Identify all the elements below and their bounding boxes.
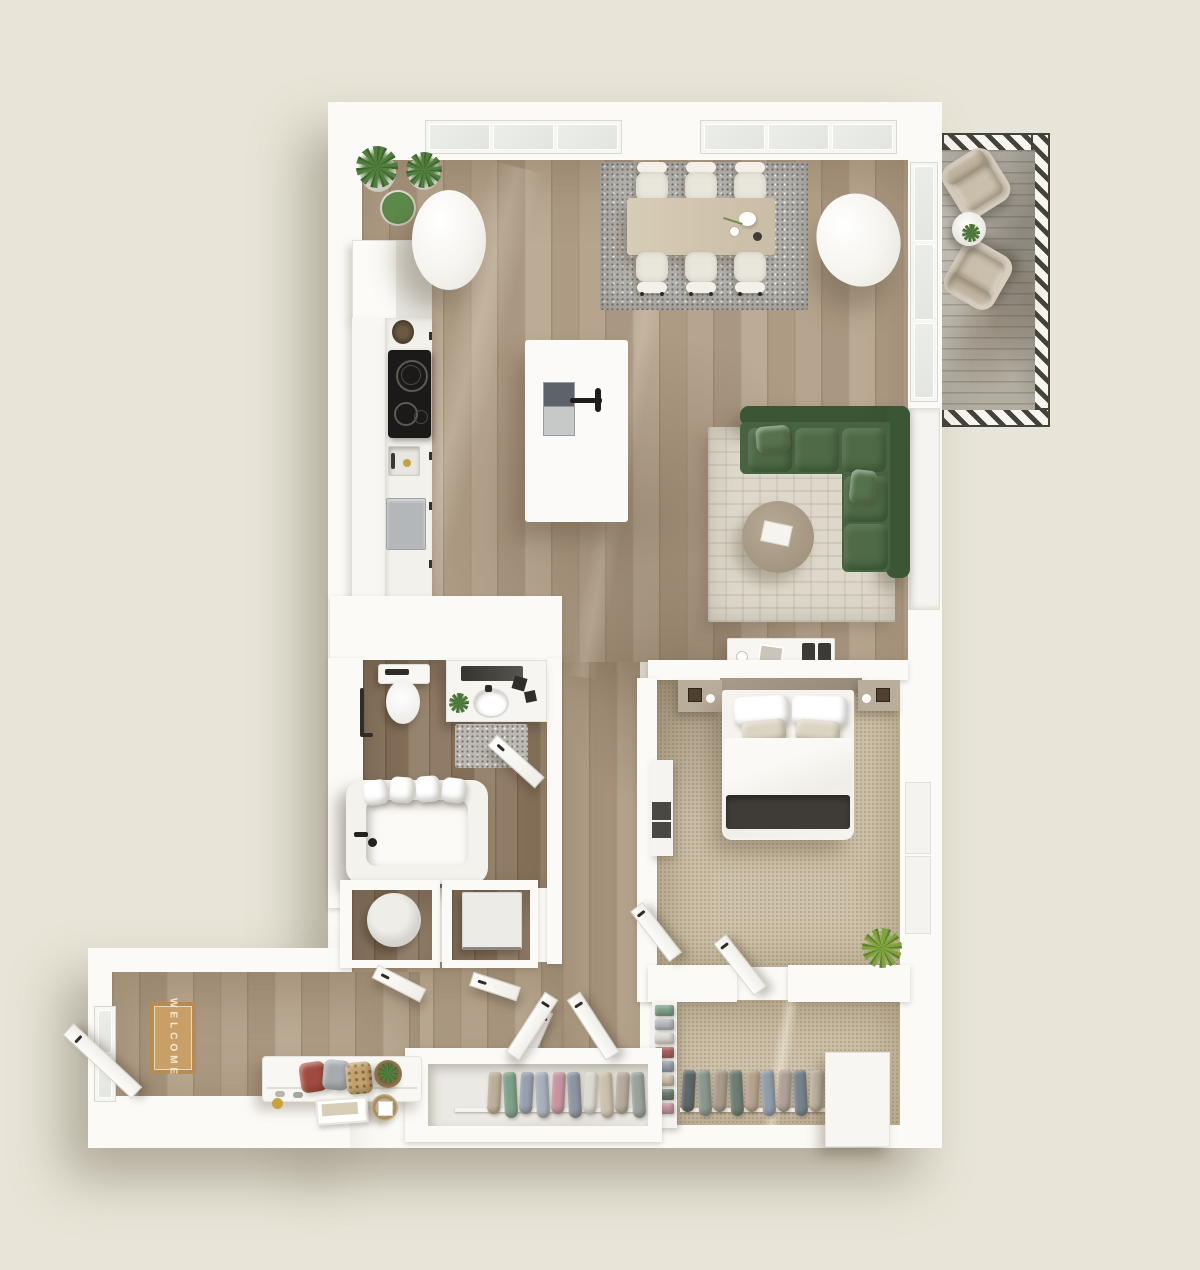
right-wall-window	[910, 162, 938, 402]
toilet-flush	[385, 669, 409, 675]
chair-leg	[758, 292, 762, 296]
chair-leg	[709, 292, 713, 296]
cabinet-handle	[429, 560, 432, 568]
bathtub-drain	[368, 838, 377, 847]
burner	[414, 410, 428, 424]
potted-plant	[356, 146, 398, 188]
nightstand-lamp	[876, 688, 890, 702]
art-image	[321, 1102, 358, 1116]
washing-machine	[367, 893, 421, 947]
towel-rail-foot	[360, 733, 373, 737]
clothing-item	[729, 1070, 744, 1117]
basket-with-towel	[371, 1094, 398, 1121]
vanity-faucet	[485, 685, 492, 692]
closet-divider-wall	[788, 965, 910, 1002]
bedroom-plant	[862, 928, 902, 968]
potted-plant	[406, 152, 442, 188]
dining-table	[627, 198, 775, 255]
sofa-throw-pillow	[848, 469, 877, 506]
window-pane	[914, 244, 934, 319]
clothing-item	[713, 1070, 728, 1113]
bathtub-basin	[366, 800, 468, 866]
dining-chair	[685, 252, 717, 282]
clothing-item	[551, 1072, 566, 1115]
welcome-mat-text: WELCOME	[168, 998, 179, 1078]
bathtub	[346, 780, 488, 884]
bathroom-right-wall	[547, 658, 562, 964]
clothing-item	[631, 1072, 646, 1119]
rolled-towel	[441, 777, 468, 805]
charcoal-throw	[726, 795, 850, 829]
nightstand	[858, 680, 900, 711]
hanging-clothes	[488, 1072, 645, 1118]
cabinet-handle	[429, 452, 432, 460]
dishwasher	[386, 498, 426, 550]
clothing-item	[535, 1072, 550, 1119]
table-cup	[753, 232, 762, 241]
dining-chair	[734, 252, 766, 282]
door-handle	[380, 973, 389, 980]
basket-towel	[378, 1101, 393, 1116]
window-pane	[768, 124, 829, 150]
clothing-item	[655, 1019, 674, 1030]
chair-leg	[738, 292, 742, 296]
basket-with-plant	[374, 1060, 402, 1088]
nightstand-cup	[862, 694, 871, 703]
door-handle	[541, 1001, 550, 1008]
island-sink	[543, 382, 575, 436]
cooktop	[388, 350, 431, 438]
sink-faucet	[391, 453, 395, 469]
basket-plant	[378, 1063, 398, 1083]
utility-unit	[462, 892, 522, 950]
nightstand-cup	[706, 694, 715, 703]
door-handle	[496, 744, 505, 752]
gold-dish	[272, 1098, 283, 1109]
bedroom-dresser	[650, 760, 673, 856]
vanity-cosmetics	[511, 675, 527, 691]
sofa-throw-pillow	[755, 425, 791, 454]
clothing-item	[519, 1072, 534, 1115]
clothing-item	[745, 1070, 760, 1113]
cabinet-handle	[429, 332, 432, 340]
window-pane	[98, 1010, 112, 1053]
balcony-door	[908, 408, 940, 610]
clothing-item	[809, 1070, 824, 1113]
nightstand	[678, 680, 722, 712]
clothing-item	[777, 1070, 792, 1113]
sofa-cushion	[844, 524, 888, 570]
clothing-item	[793, 1070, 808, 1117]
kitchen-sink	[388, 446, 420, 476]
welcome-mat: WELCOME	[150, 1002, 196, 1074]
rolled-towel	[362, 778, 389, 806]
island-faucet-handle	[595, 388, 601, 412]
sofa-cushion	[795, 428, 839, 472]
closet-divider-wall	[648, 965, 737, 1002]
clothing-item	[697, 1070, 712, 1117]
chair-leg	[689, 292, 693, 296]
double-bed	[722, 690, 854, 840]
window-pane	[832, 124, 893, 150]
bathroom-vanity	[446, 660, 547, 722]
door-handle	[477, 980, 486, 986]
potted-plant	[382, 192, 414, 224]
chair-leg	[640, 292, 644, 296]
kitchen-tall-cabinets	[352, 318, 386, 600]
burner	[401, 365, 421, 385]
window-pane	[914, 166, 934, 241]
rolled-towel	[389, 776, 415, 804]
leaning-wall-art	[315, 1096, 369, 1126]
clothing-item	[583, 1072, 598, 1115]
bathtub-faucet	[354, 832, 368, 837]
window-band	[425, 120, 622, 154]
counter-decor-plant	[392, 320, 414, 344]
coffee-table	[742, 501, 814, 573]
clothing-item	[487, 1072, 502, 1115]
round-column	[412, 190, 486, 290]
window-pane	[557, 124, 618, 150]
nightstand-lamp	[688, 688, 702, 702]
table-plant	[962, 224, 980, 242]
window-pane	[429, 124, 490, 150]
clothing-item	[567, 1072, 582, 1119]
clothing-item	[503, 1072, 518, 1119]
toilet-bowl	[386, 680, 420, 724]
closet-cabinet	[825, 1052, 890, 1147]
clothing-item	[655, 1033, 674, 1044]
window-pane	[914, 323, 934, 398]
dresser-drawer	[652, 822, 671, 838]
window-band	[700, 120, 897, 154]
window-pane	[704, 124, 765, 150]
bench-shoes	[293, 1092, 303, 1098]
table-cup	[729, 226, 740, 237]
clothing-item	[655, 1005, 674, 1016]
door-handle	[74, 1035, 82, 1044]
cabinet-handle	[429, 502, 432, 510]
bedroom-north-wall	[648, 660, 908, 680]
door-handle	[720, 942, 729, 950]
balcony-railing	[944, 410, 1048, 425]
floor-plan-scene: WELCOME	[0, 0, 1200, 1270]
clothing-item	[615, 1072, 630, 1115]
window-pane	[493, 124, 554, 150]
coffee-table-book	[760, 520, 793, 547]
vanity-sink	[473, 688, 509, 718]
vanity-cosmetics	[524, 690, 537, 703]
bench-pillow-leopard	[345, 1061, 374, 1095]
wall-panel-door	[905, 856, 931, 934]
clothing-item	[761, 1070, 776, 1117]
door-handle	[637, 910, 646, 918]
wall-panel-door	[905, 782, 931, 854]
sofa-cushion	[842, 428, 886, 472]
door-handle	[574, 1001, 583, 1008]
towel-rail	[360, 688, 364, 736]
kitchen-island	[525, 340, 628, 522]
bathroom-top-wall	[330, 596, 562, 660]
rolled-towel	[415, 775, 441, 803]
vanity-plant	[449, 693, 469, 713]
dresser-drawer	[652, 802, 671, 820]
sink-drain	[403, 459, 411, 467]
clothing-item	[599, 1072, 614, 1119]
bench-shoes	[275, 1091, 285, 1097]
clothing-item	[681, 1070, 696, 1113]
chair-leg	[660, 292, 664, 296]
dining-chair	[636, 252, 668, 282]
